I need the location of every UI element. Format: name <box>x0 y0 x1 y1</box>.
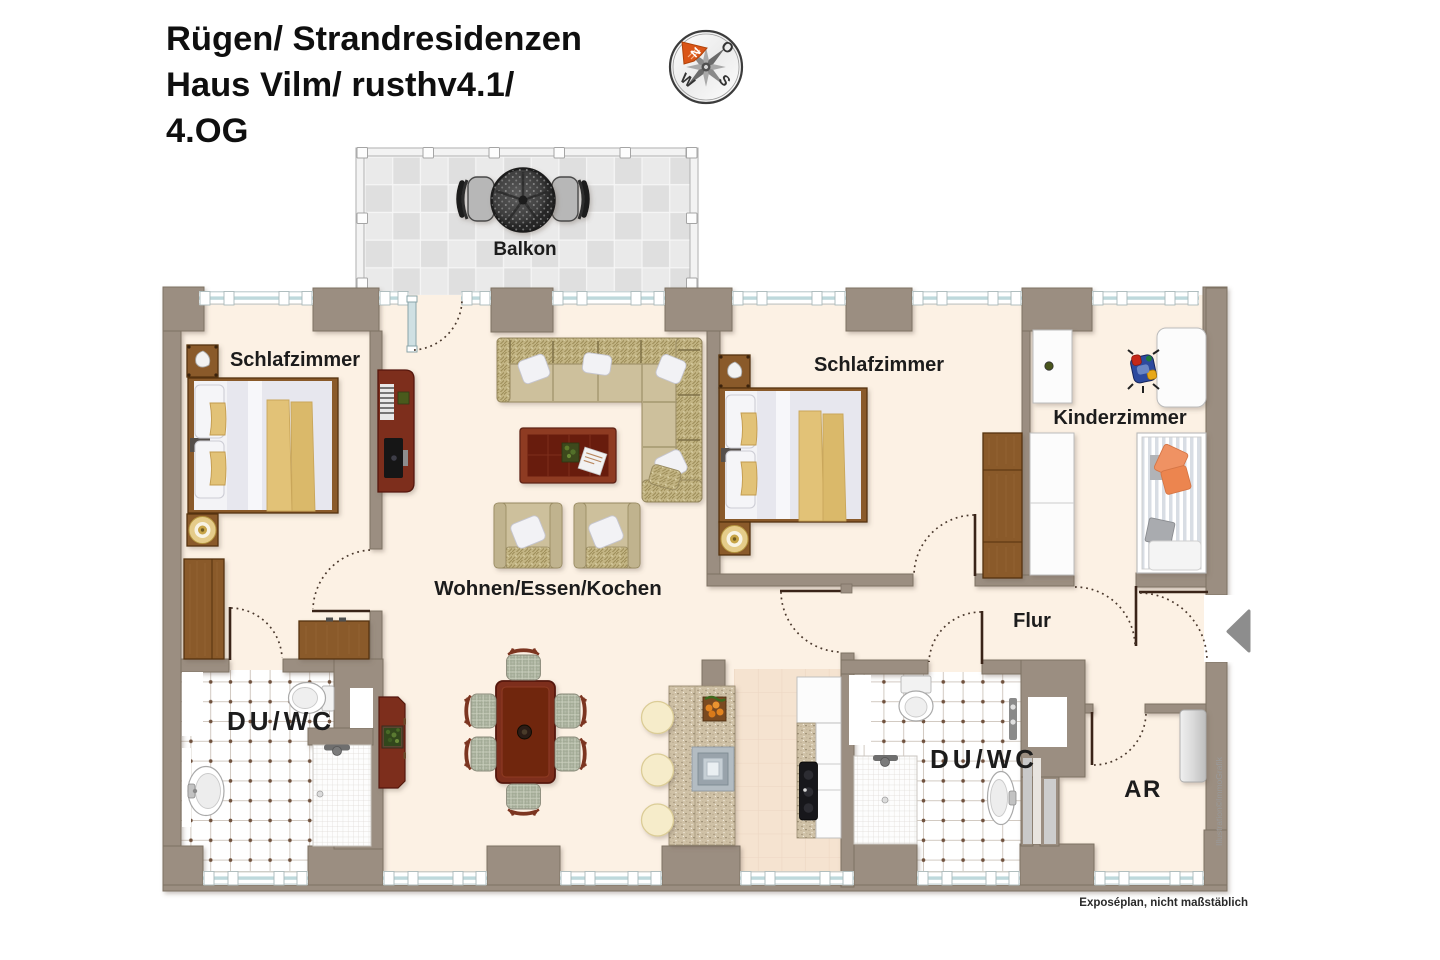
svg-text:Schlafzimmer: Schlafzimmer <box>814 354 944 376</box>
svg-text:Balkon: Balkon <box>493 239 556 260</box>
svg-text:DU/WC: DU/WC <box>930 744 1038 774</box>
svg-text:DU/WC: DU/WC <box>227 706 335 736</box>
svg-text:4.OG: 4.OG <box>166 112 248 150</box>
svg-text:Schlafzimmer: Schlafzimmer <box>230 349 360 371</box>
svg-text:AR: AR <box>1124 776 1162 803</box>
svg-text:Flur: Flur <box>1013 610 1051 632</box>
svg-text:Illustration©ImmoGrafik: Illustration©ImmoGrafik <box>1214 756 1224 846</box>
svg-text:Exposéplan, nicht maßstäblich: Exposéplan, nicht maßstäblich <box>1079 897 1248 909</box>
svg-text:Wohnen/Essen/Kochen: Wohnen/Essen/Kochen <box>434 577 661 600</box>
svg-text:Kinderzimmer: Kinderzimmer <box>1053 407 1187 429</box>
svg-text:Haus Vilm/ rusthv4.1/: Haus Vilm/ rusthv4.1/ <box>166 66 515 104</box>
svg-text:Rügen/ Strandresidenzen: Rügen/ Strandresidenzen <box>166 20 582 58</box>
